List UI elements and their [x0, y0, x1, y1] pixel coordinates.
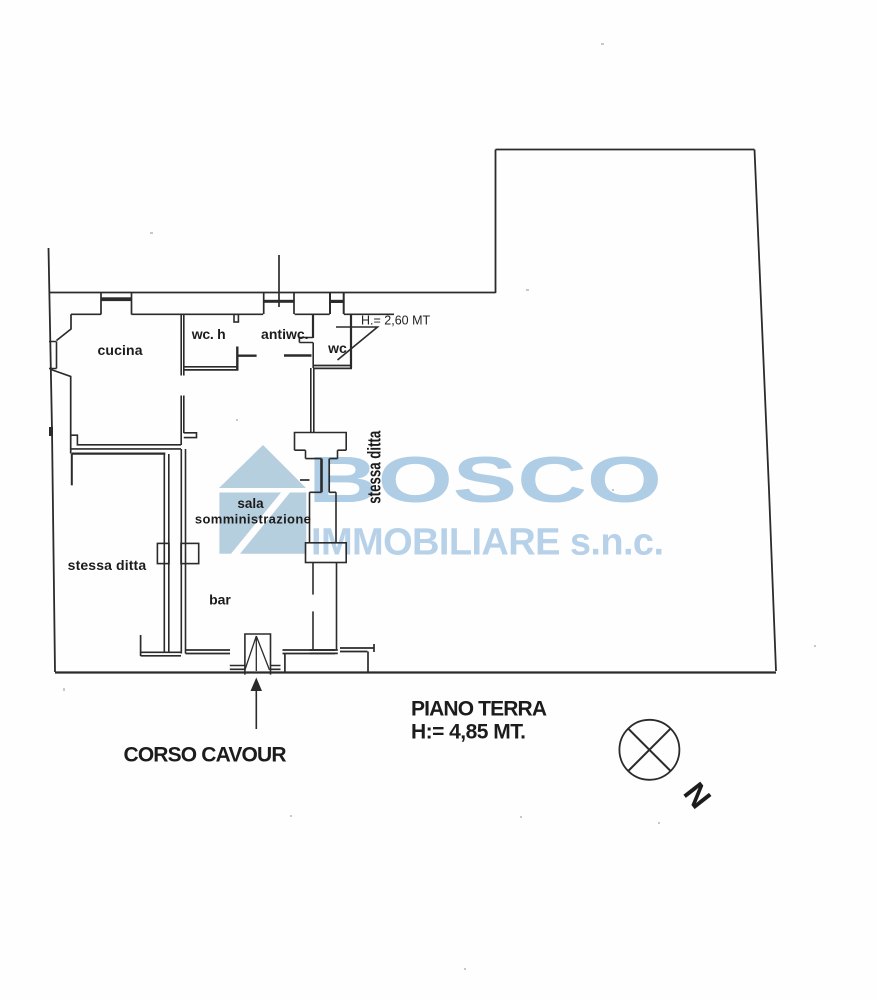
svg-text:CORSO CAVOUR: CORSO CAVOUR: [124, 744, 287, 767]
svg-text:stessa ditta: stessa ditta: [68, 557, 147, 573]
svg-text:cucina: cucina: [98, 342, 143, 358]
svg-text:H.= 2,60 MT: H.= 2,60 MT: [361, 314, 430, 328]
svg-text:H:= 4,85 MT.: H:= 4,85 MT.: [411, 721, 526, 744]
svg-text:wc. h: wc. h: [191, 326, 226, 342]
svg-text:N: N: [677, 776, 718, 815]
svg-text:PIANO TERRA: PIANO TERRA: [411, 698, 547, 721]
svg-text:wc: wc: [327, 340, 347, 356]
svg-text:IMMOBILIARE s.n.c.: IMMOBILIARE s.n.c.: [311, 522, 664, 564]
svg-text:stessa ditta: stessa ditta: [364, 430, 385, 504]
svg-text:antiwc.: antiwc.: [261, 326, 309, 342]
svg-text:bar: bar: [209, 592, 231, 608]
svg-text:somministrazione: somministrazione: [195, 512, 311, 527]
svg-text:sala: sala: [237, 496, 264, 511]
svg-text:BOSCO: BOSCO: [308, 443, 662, 516]
